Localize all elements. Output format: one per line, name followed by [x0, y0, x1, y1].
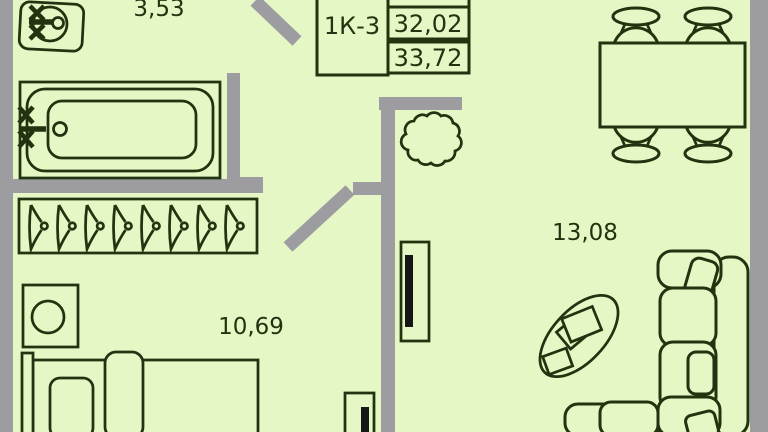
unit-info-table: 1К-3 32,02 33,72 [317, 0, 469, 75]
left-wall [0, 0, 13, 432]
living-room-area-label: 13,08 [552, 220, 618, 246]
right-wall [750, 0, 768, 432]
floor-plan: 1К-3 32,02 33,72 3,53 10,69 13,08 [0, 0, 768, 432]
unit-type-label: 1К-3 [324, 12, 380, 40]
vent-shaft-icon [401, 242, 429, 341]
bathroom-bottom-wall [0, 179, 263, 193]
dining-table-icon [600, 43, 745, 127]
vent-shaft-icon [345, 393, 374, 432]
floor-plan-svg: 1К-3 32,02 33,72 3,53 10,69 13,08 [0, 0, 768, 432]
bathroom-right-wall [227, 73, 240, 180]
bed-icon [22, 352, 258, 432]
center-wall [381, 97, 395, 432]
bedroom-door-jamb [353, 182, 381, 195]
bedroom-area-label: 10,69 [218, 314, 284, 340]
bathroom-wall-corner [240, 177, 263, 193]
bathroom-area-label: 3,53 [133, 0, 184, 22]
area-top-value: 32,02 [394, 10, 463, 38]
area-bottom-value: 33,72 [394, 44, 463, 72]
